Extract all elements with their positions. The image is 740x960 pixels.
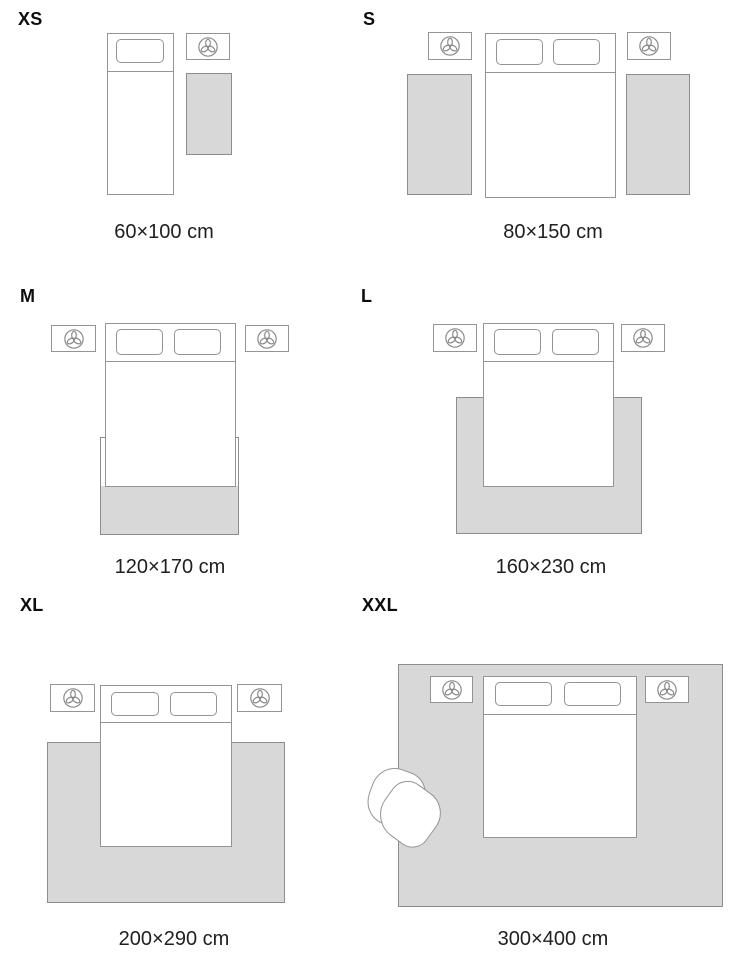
rug-visible-part (101, 486, 238, 534)
plant-icon (197, 36, 219, 58)
nightstand (245, 325, 289, 352)
plant-icon (656, 679, 678, 701)
dimension-label: 80×150 cm (443, 221, 663, 243)
plant-icon (256, 328, 278, 350)
rug-right (626, 74, 690, 195)
nightstand (621, 324, 665, 352)
nightstand (51, 325, 96, 352)
rug (186, 73, 232, 155)
panel-size-label: XS (18, 9, 43, 29)
panel-size-label: L (361, 286, 372, 306)
pillow (495, 682, 552, 706)
single-bed (107, 33, 174, 195)
plant-icon (638, 35, 660, 57)
nightstand (50, 684, 95, 712)
nightstand (627, 32, 671, 60)
double-bed (105, 323, 236, 487)
nightstand (237, 684, 282, 712)
plant-icon (249, 687, 271, 709)
dimension-label: 120×170 cm (60, 556, 280, 578)
pillow (496, 39, 543, 65)
pillow (116, 329, 163, 355)
double-bed (485, 33, 616, 198)
nightstand (428, 32, 472, 60)
pillow (564, 682, 621, 706)
plant-icon (439, 35, 461, 57)
nightstand (433, 324, 477, 352)
pillow (116, 39, 164, 63)
nightstand (186, 33, 230, 60)
pillow (494, 329, 541, 355)
panel-size-label: S (363, 9, 375, 29)
dimension-label: 60×100 cm (54, 221, 274, 243)
nightstand (645, 676, 689, 703)
rug-left (407, 74, 472, 195)
pillow (174, 329, 221, 355)
pillow (170, 692, 217, 716)
dimension-label: 200×290 cm (64, 928, 284, 950)
double-bed (100, 685, 232, 847)
plant-icon (441, 679, 463, 701)
panel-size-label: XL (20, 595, 44, 615)
pillow (111, 692, 159, 716)
nightstand (430, 676, 473, 703)
pillow (552, 329, 599, 355)
plant-icon (632, 327, 654, 349)
panel-size-label: XXL (362, 595, 398, 615)
plant-icon (444, 327, 466, 349)
dimension-label: 160×230 cm (441, 556, 661, 578)
double-bed (483, 323, 614, 487)
dimension-label: 300×400 cm (443, 928, 663, 950)
plant-icon (63, 328, 85, 350)
plant-icon (62, 687, 84, 709)
double-bed (483, 676, 637, 838)
panel-size-label: M (20, 286, 35, 306)
pillow (553, 39, 600, 65)
rug-size-guide: XS 60×100 cm S 80×150 cm M (0, 0, 740, 960)
